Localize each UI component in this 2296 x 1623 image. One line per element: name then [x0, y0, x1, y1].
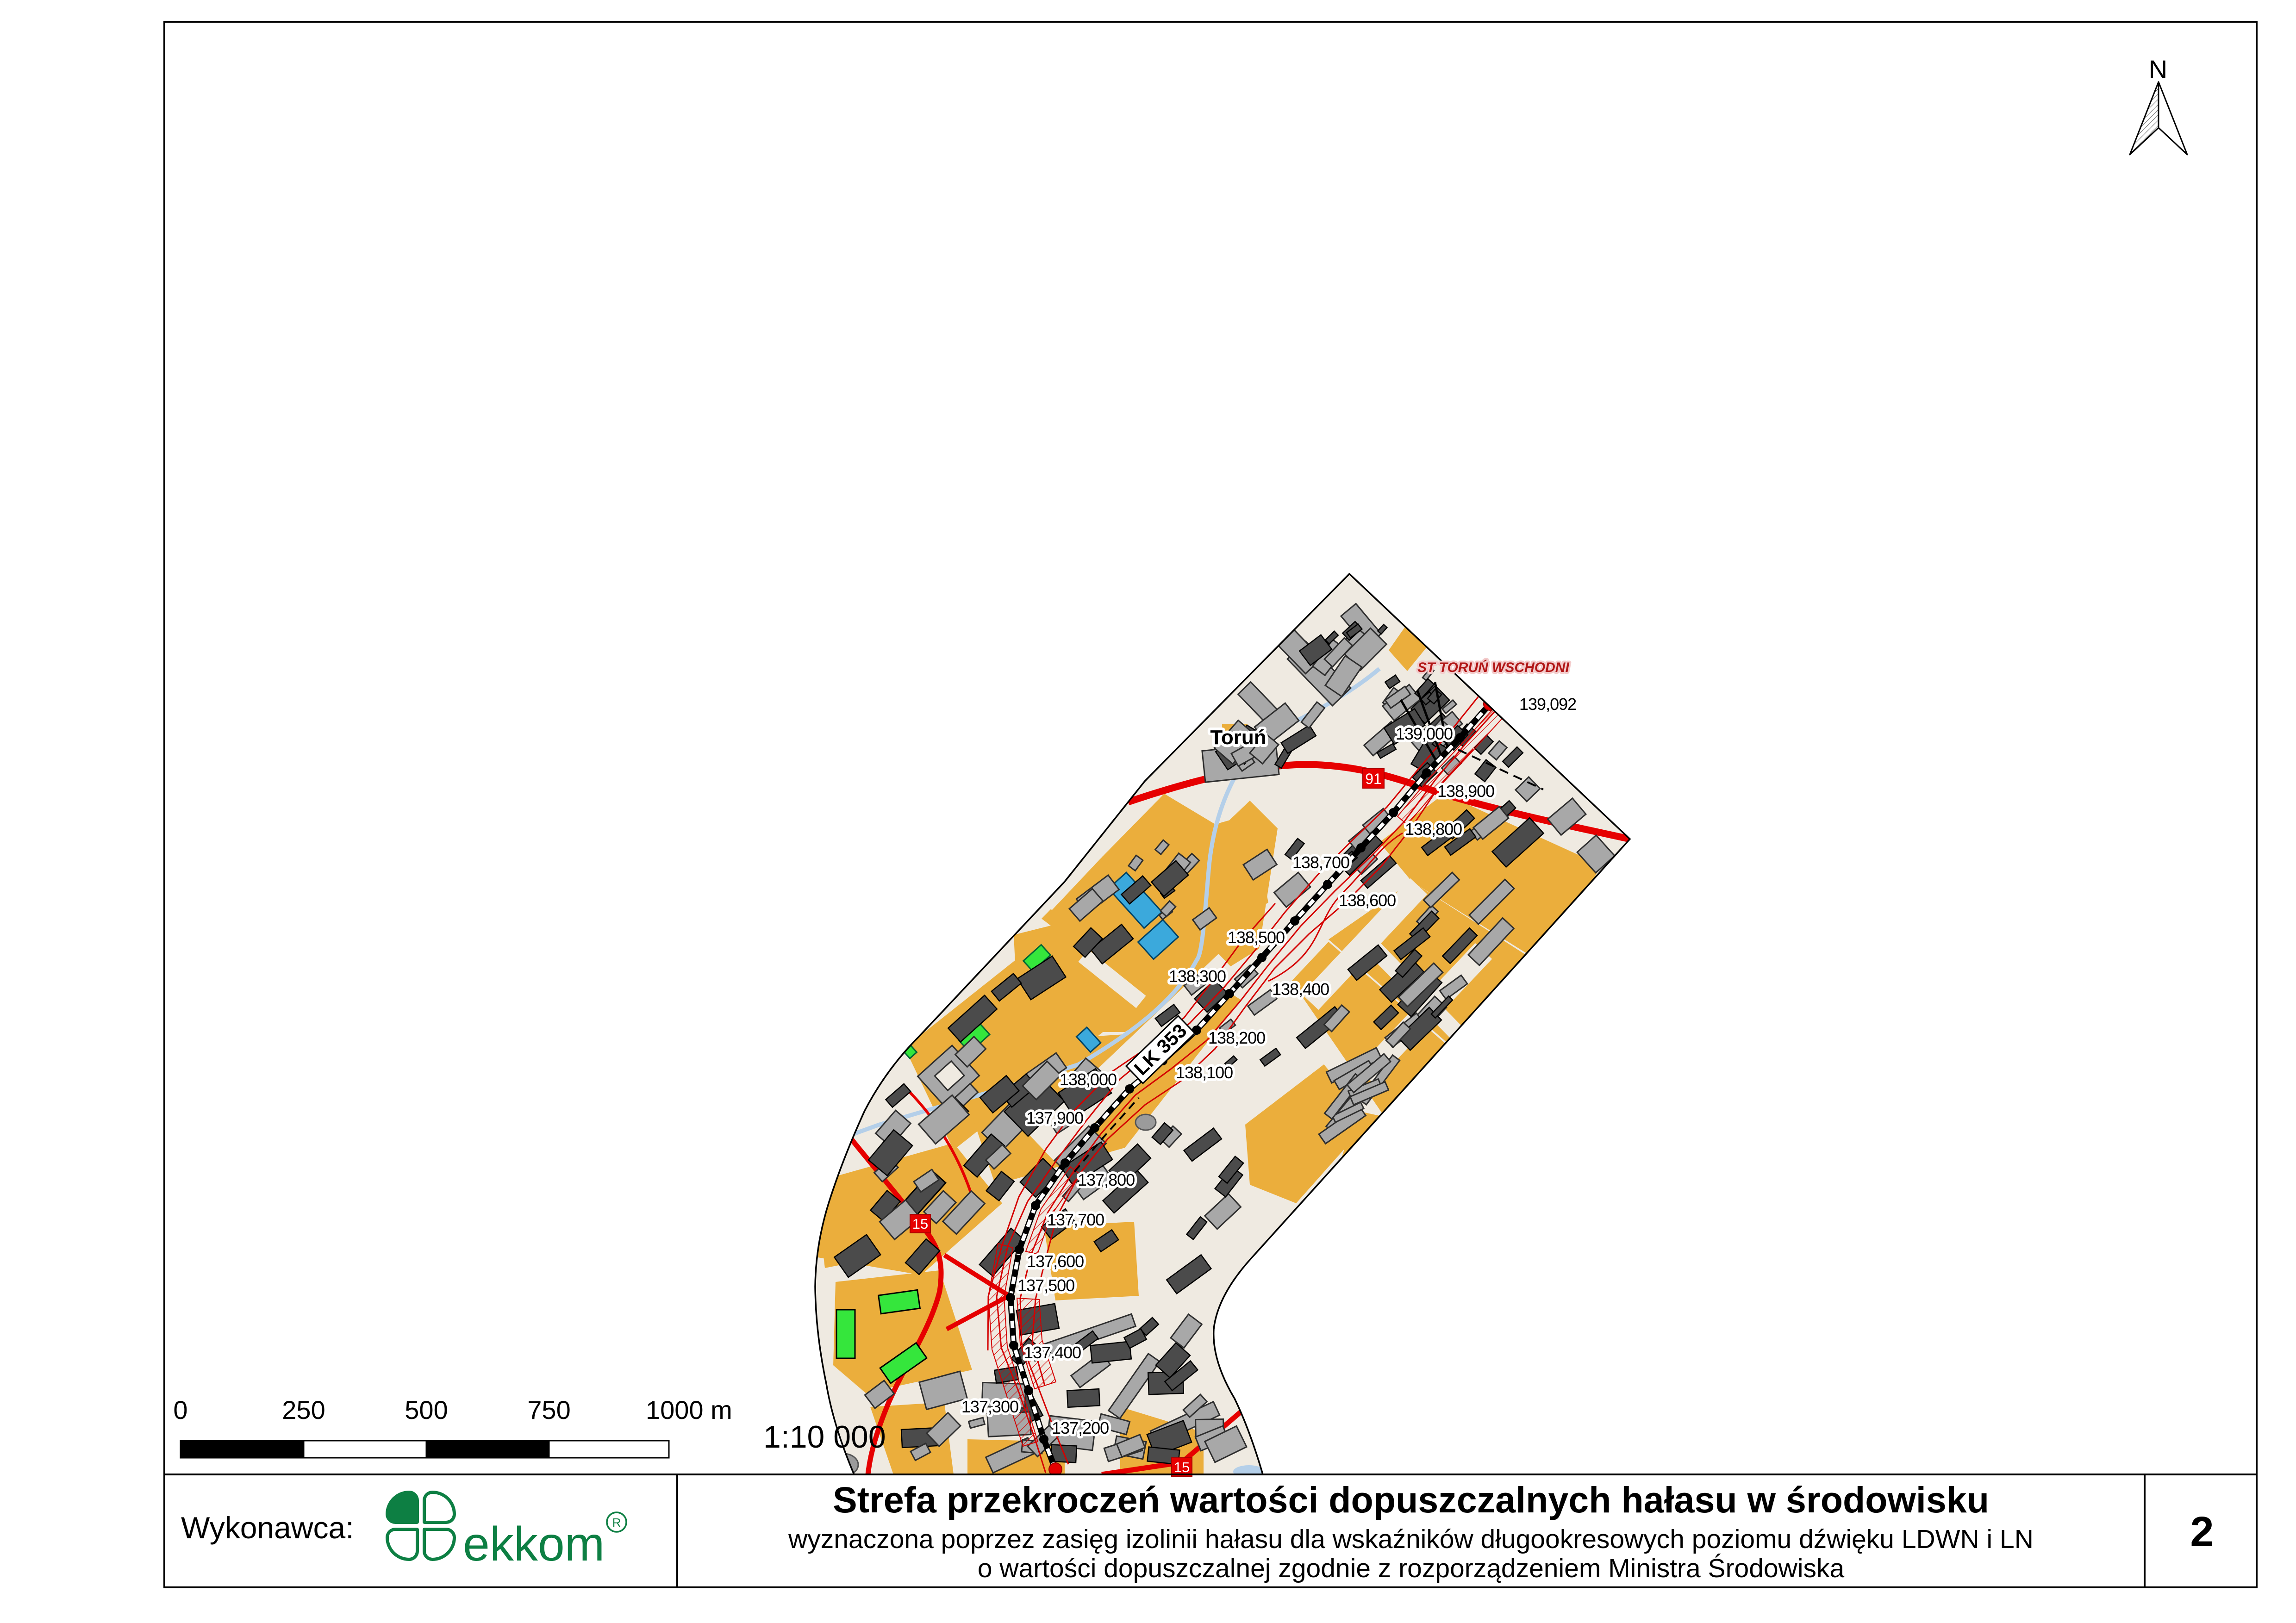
svg-text:137,700: 137,700 — [1047, 1210, 1104, 1229]
svg-text:138,300: 138,300 — [1169, 967, 1226, 986]
svg-text:137,900: 137,900 — [1026, 1108, 1083, 1127]
svg-text:15: 15 — [1174, 1459, 1190, 1475]
svg-text:o wartości dopuszczalnej zgodn: o wartości dopuszczalnej zgodnie z rozpo… — [978, 1553, 1845, 1583]
svg-text:ekkom: ekkom — [463, 1517, 605, 1571]
svg-text:138,100: 138,100 — [1176, 1063, 1233, 1082]
svg-text:138,700: 138,700 — [1292, 853, 1349, 872]
svg-text:137,300: 137,300 — [961, 1397, 1018, 1416]
svg-text:137,500: 137,500 — [1017, 1276, 1074, 1295]
svg-text:91: 91 — [1365, 771, 1382, 787]
svg-text:0: 0 — [173, 1395, 187, 1424]
svg-text:139,000: 139,000 — [1396, 724, 1453, 743]
svg-text:15: 15 — [912, 1216, 928, 1232]
svg-text:250: 250 — [282, 1395, 325, 1424]
svg-text:wyznaczona poprzez zasięg izol: wyznaczona poprzez zasięg izolinii hałas… — [788, 1524, 2034, 1554]
svg-text:N: N — [2149, 55, 2167, 84]
svg-text:138,600: 138,600 — [1339, 891, 1396, 910]
svg-text:138,400: 138,400 — [1272, 980, 1329, 999]
svg-text:500: 500 — [405, 1395, 448, 1424]
svg-text:750: 750 — [527, 1395, 570, 1424]
svg-text:137,800: 137,800 — [1078, 1170, 1135, 1189]
svg-text:Strefa przekroczeń wartości do: Strefa przekroczeń wartości dopuszczalny… — [833, 1479, 1989, 1520]
svg-text:137,200: 137,200 — [1052, 1418, 1109, 1437]
svg-text:139,092: 139,092 — [1519, 695, 1576, 714]
svg-text:1000 m: 1000 m — [646, 1395, 732, 1424]
svg-text:138,900: 138,900 — [1437, 782, 1494, 801]
svg-text:Toruń: Toruń — [1210, 726, 1266, 749]
svg-text:137,600: 137,600 — [1027, 1252, 1084, 1271]
svg-text:138,200: 138,200 — [1208, 1028, 1265, 1047]
svg-text:Wykonawca:: Wykonawca: — [181, 1511, 354, 1545]
svg-text:138,000: 138,000 — [1060, 1070, 1117, 1089]
svg-text:1:10 000: 1:10 000 — [763, 1419, 886, 1455]
svg-text:2: 2 — [2190, 1508, 2214, 1555]
svg-text:ST TORUŃ WSCHODNI: ST TORUŃ WSCHODNI — [1417, 659, 1569, 675]
svg-text:R: R — [612, 1516, 621, 1530]
svg-text:138,500: 138,500 — [1228, 928, 1285, 947]
svg-text:138,800: 138,800 — [1405, 820, 1462, 839]
svg-text:137,400: 137,400 — [1024, 1343, 1081, 1362]
